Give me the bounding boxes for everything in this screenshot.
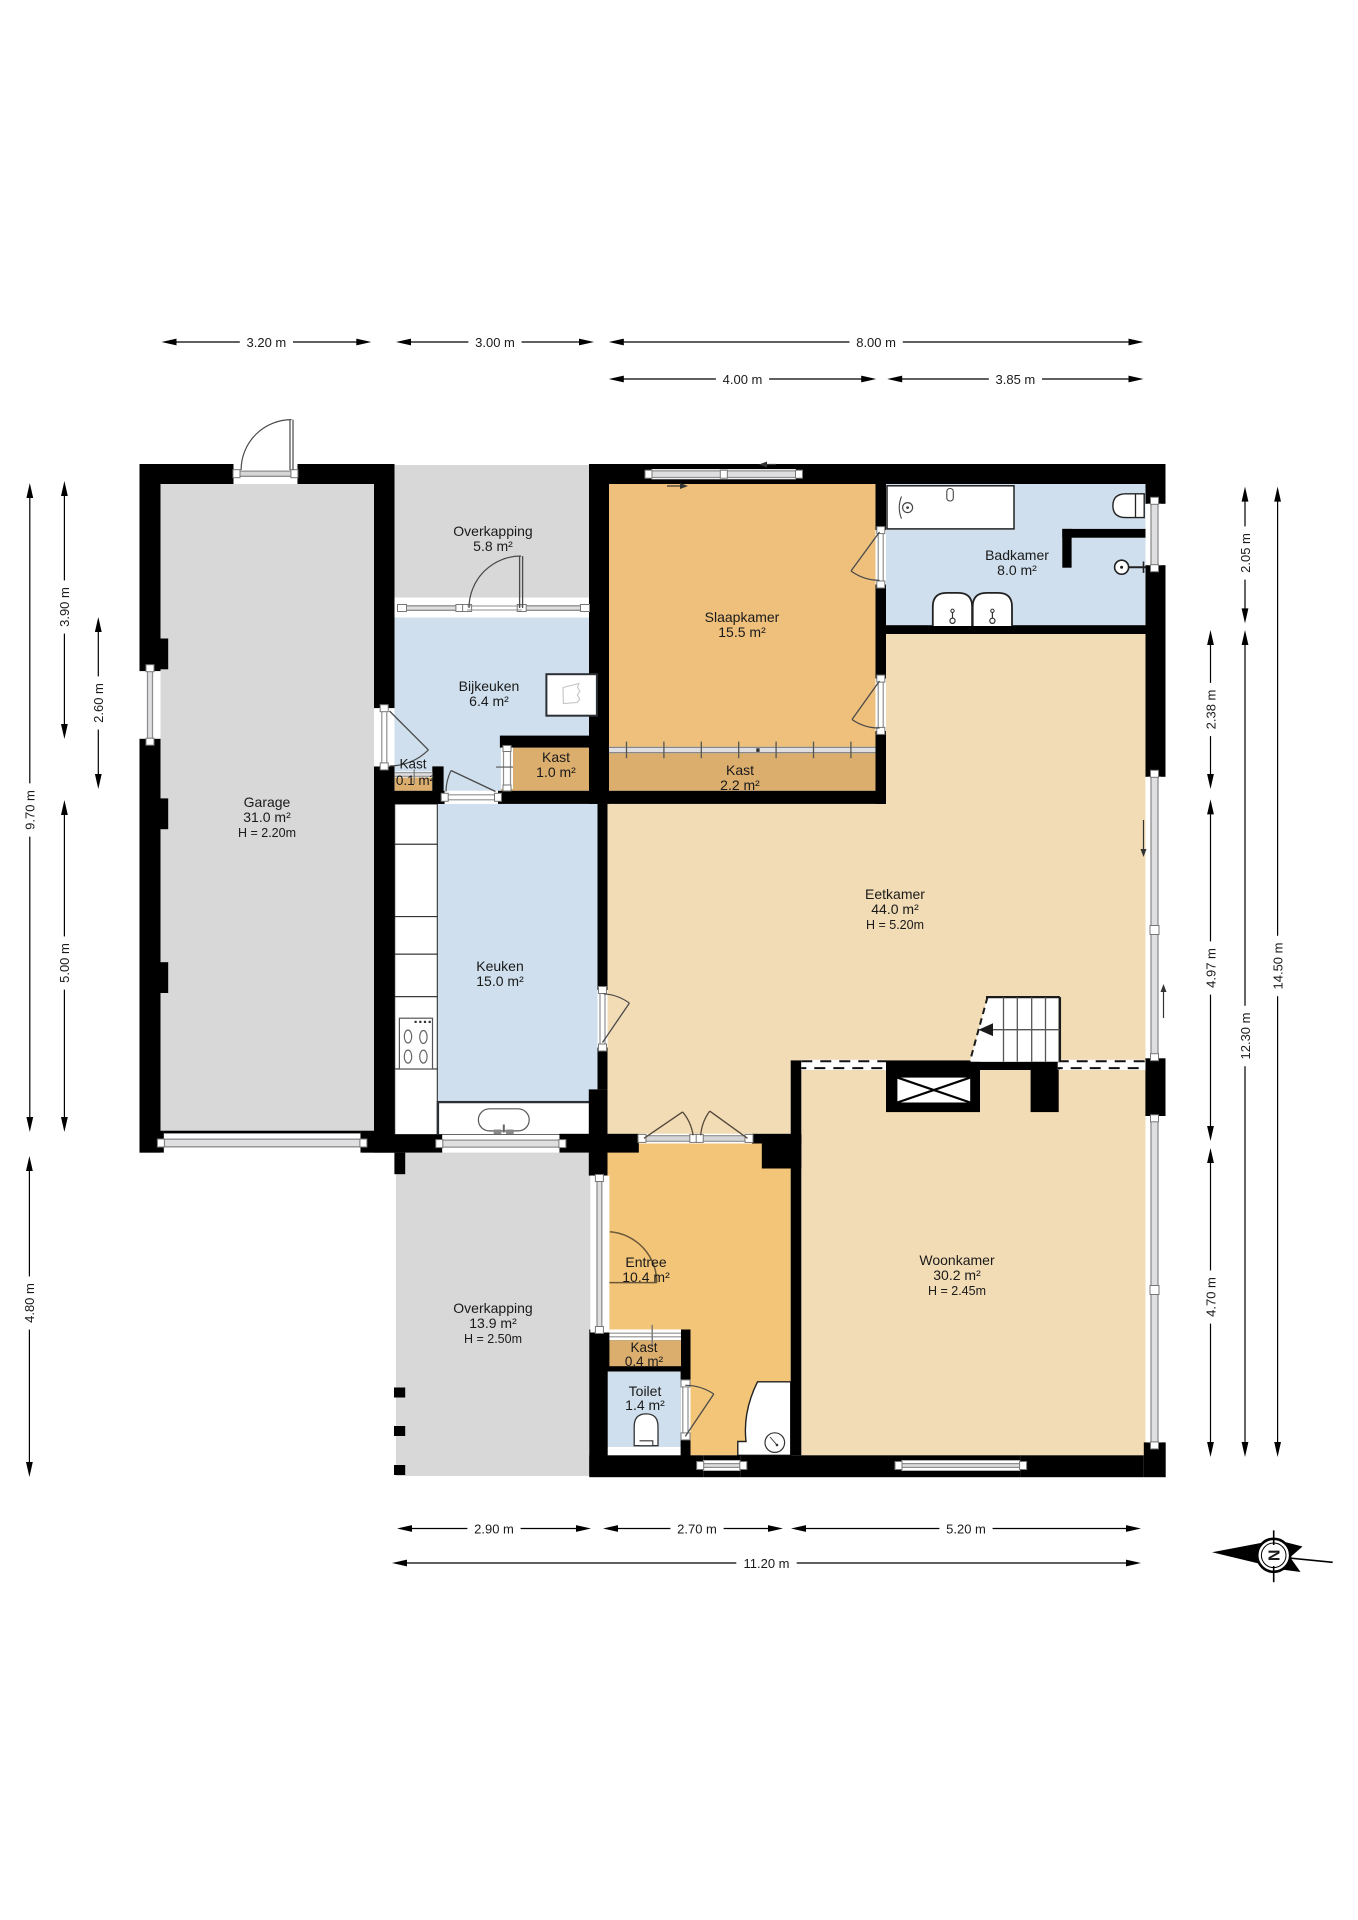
- svg-text:Eetkamer: Eetkamer: [865, 886, 925, 902]
- svg-text:1.0 m²: 1.0 m²: [536, 764, 576, 780]
- svg-text:2.2 m²: 2.2 m²: [720, 777, 760, 793]
- svg-text:8.00 m: 8.00 m: [856, 335, 896, 350]
- svg-text:13.9 m²: 13.9 m²: [469, 1315, 517, 1331]
- svg-text:2.05 m: 2.05 m: [1238, 533, 1253, 573]
- svg-text:31.0 m²: 31.0 m²: [243, 809, 291, 825]
- svg-text:5.8 m²: 5.8 m²: [473, 538, 513, 554]
- svg-text:3.85 m: 3.85 m: [996, 372, 1036, 387]
- svg-text:Overkapping: Overkapping: [453, 1300, 532, 1316]
- svg-text:14.50 m: 14.50 m: [1270, 943, 1285, 990]
- svg-text:H = 2.50m: H = 2.50m: [464, 1332, 522, 1346]
- svg-text:15.0 m²: 15.0 m²: [476, 973, 524, 989]
- svg-text:Kast: Kast: [726, 762, 754, 778]
- svg-text:Kast: Kast: [542, 749, 570, 765]
- svg-text:5.20 m: 5.20 m: [946, 1521, 986, 1536]
- svg-text:Woonkamer: Woonkamer: [919, 1252, 995, 1268]
- svg-text:8.0 m²: 8.0 m²: [997, 562, 1037, 578]
- svg-text:Keuken: Keuken: [476, 958, 523, 974]
- svg-text:Badkamer: Badkamer: [985, 547, 1049, 563]
- svg-text:Entree: Entree: [625, 1254, 666, 1270]
- svg-text:2.60 m: 2.60 m: [91, 683, 106, 723]
- svg-text:4.70 m: 4.70 m: [1203, 1277, 1218, 1317]
- svg-text:H = 2.45m: H = 2.45m: [928, 1284, 986, 1298]
- svg-text:3.20 m: 3.20 m: [247, 335, 287, 350]
- svg-text:Kast: Kast: [630, 1340, 657, 1355]
- svg-text:4.80 m: 4.80 m: [22, 1283, 37, 1323]
- svg-text:Slaapkamer: Slaapkamer: [705, 609, 780, 625]
- svg-text:4.00 m: 4.00 m: [723, 372, 763, 387]
- svg-text:0.1 m²: 0.1 m²: [396, 773, 435, 788]
- svg-text:Garage: Garage: [244, 794, 291, 810]
- svg-text:H = 2.20m: H = 2.20m: [238, 826, 296, 840]
- svg-text:0.4 m²: 0.4 m²: [625, 1354, 664, 1369]
- svg-text:15.5 m²: 15.5 m²: [718, 624, 766, 640]
- svg-text:3.00 m: 3.00 m: [475, 335, 515, 350]
- svg-text:2.70 m: 2.70 m: [677, 1521, 717, 1536]
- svg-text:30.2 m²: 30.2 m²: [933, 1267, 981, 1283]
- svg-text:11.20 m: 11.20 m: [743, 1556, 789, 1571]
- svg-text:Overkapping: Overkapping: [453, 523, 532, 539]
- svg-text:2.38 m: 2.38 m: [1203, 690, 1218, 730]
- svg-text:1.4 m²: 1.4 m²: [625, 1397, 665, 1413]
- svg-text:Kast: Kast: [399, 757, 426, 772]
- svg-text:N: N: [1266, 1550, 1283, 1562]
- svg-text:4.97 m: 4.97 m: [1203, 948, 1218, 988]
- svg-text:H = 5.20m: H = 5.20m: [866, 918, 924, 932]
- svg-text:Bijkeuken: Bijkeuken: [459, 678, 520, 694]
- svg-text:2.90 m: 2.90 m: [474, 1521, 514, 1536]
- svg-text:10.4 m²: 10.4 m²: [622, 1269, 670, 1285]
- svg-text:12.30 m: 12.30 m: [1238, 1013, 1253, 1060]
- svg-text:3.90 m: 3.90 m: [57, 587, 72, 627]
- svg-text:9.70 m: 9.70 m: [23, 790, 38, 830]
- svg-text:6.4 m²: 6.4 m²: [469, 693, 509, 709]
- svg-text:5.00 m: 5.00 m: [57, 943, 72, 983]
- svg-text:44.0 m²: 44.0 m²: [871, 901, 919, 917]
